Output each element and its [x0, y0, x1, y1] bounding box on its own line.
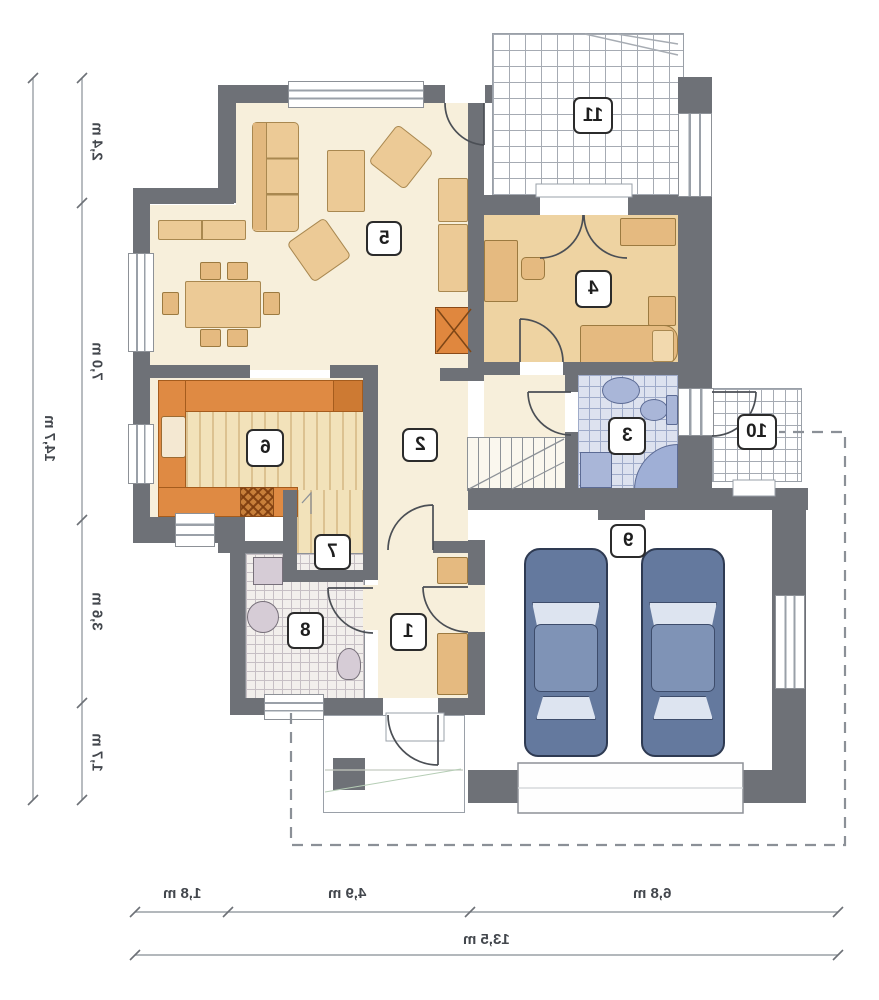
wall — [283, 570, 363, 582]
chimney — [598, 510, 645, 520]
stove — [240, 487, 274, 517]
toilet — [640, 399, 668, 421]
room-number: 9 — [623, 530, 634, 552]
room-badge-living: 5 — [366, 221, 402, 256]
window — [264, 694, 324, 720]
porch-column — [333, 758, 365, 790]
wall — [678, 434, 712, 490]
wall — [218, 85, 236, 203]
utility-door-opening — [363, 585, 378, 630]
toilet-tank — [666, 395, 678, 425]
wall — [468, 103, 484, 375]
sofa — [252, 122, 299, 232]
wall — [433, 541, 468, 553]
corridor-floor — [484, 375, 565, 437]
room-badge-kitchen: 6 — [246, 429, 284, 467]
utility-basin — [247, 601, 279, 633]
wall — [363, 365, 378, 580]
dim-bottom-3: 6,8 m — [612, 882, 692, 904]
media-cabinet — [438, 224, 468, 292]
window — [175, 513, 215, 547]
dining-chair — [227, 262, 248, 280]
room-number: 10 — [746, 421, 767, 443]
porch-door — [678, 388, 714, 436]
hall-closet — [437, 633, 468, 695]
wall — [440, 368, 484, 381]
bathroom-sink — [602, 377, 640, 404]
staircase — [467, 437, 565, 491]
dim-bottom-2: 4,9 m — [307, 882, 387, 904]
front-door-opening — [383, 698, 438, 715]
room-number: 4 — [588, 278, 599, 300]
dim-left-4: 1,7 m — [84, 707, 110, 797]
dim-left-3: 3,6 m — [84, 566, 110, 656]
room-number: 2 — [415, 434, 426, 456]
wardrobe — [620, 218, 676, 246]
room-number: 3 — [622, 425, 633, 447]
window — [128, 253, 154, 352]
wall — [468, 770, 806, 803]
room-badge-bathroom: 3 — [608, 417, 646, 455]
french-door-opening — [540, 197, 628, 215]
room-number: 1 — [403, 621, 414, 643]
dim-left-total: 14,7 m — [36, 393, 62, 483]
dining-chair — [200, 329, 221, 347]
room-badge-pantry: 7 — [314, 534, 351, 570]
garage-window — [775, 595, 805, 689]
wall — [678, 77, 712, 115]
bed — [580, 325, 678, 365]
dining-chair — [200, 262, 221, 280]
desk-chair — [521, 257, 545, 280]
room-number: 7 — [327, 541, 338, 563]
room-number: 8 — [300, 620, 311, 642]
wall — [484, 362, 520, 375]
dim-text: 6,8 m — [633, 885, 671, 902]
dim-text: 13,5 m — [463, 931, 510, 948]
dim-bottom-1: 1,8 m — [142, 882, 222, 904]
room-number: 5 — [379, 228, 390, 250]
dim-text: 1,7 m — [89, 733, 106, 771]
car — [641, 548, 725, 757]
dim-text: 4,9 m — [328, 885, 366, 902]
dim-text: 2,4 m — [89, 122, 106, 160]
tv-cabinet — [438, 178, 468, 222]
garage-door-opening — [468, 585, 485, 632]
dim-text: 3,6 m — [89, 592, 106, 630]
dining-chair — [263, 292, 280, 315]
wall — [150, 365, 250, 378]
wall — [563, 362, 678, 375]
dining-chair — [227, 329, 248, 347]
desk — [484, 240, 518, 302]
room-badge-utility: 8 — [287, 612, 324, 649]
room-badge-garage: 9 — [610, 524, 646, 558]
wall — [230, 548, 245, 700]
room-number: 6 — [260, 437, 271, 459]
dining-table — [185, 281, 261, 328]
window — [128, 424, 154, 484]
room-badge-corridor: 2 — [402, 428, 438, 462]
window — [288, 81, 424, 108]
room-badge-hall: 1 — [390, 613, 427, 651]
dim-left-1: 2,4 m — [84, 96, 110, 186]
wall — [230, 541, 285, 553]
dim-text: 7,0 m — [89, 342, 106, 380]
dim-left-2: 7,0 m — [84, 316, 110, 406]
dim-text: 1,8 m — [163, 885, 201, 902]
sideboard — [158, 220, 246, 240]
wall — [283, 490, 297, 575]
hall-closet — [437, 557, 468, 584]
wall — [468, 488, 808, 510]
dim-text: 14,7 m — [41, 415, 58, 462]
dresser — [648, 296, 676, 326]
wall — [678, 193, 712, 390]
wall — [565, 432, 578, 490]
toilet — [337, 648, 361, 680]
wall — [565, 375, 578, 392]
bathroom-washer — [580, 452, 612, 488]
kitchen-sink — [161, 416, 186, 458]
room-badge-terrace: 11 — [573, 97, 613, 134]
room-badge-study: 4 — [575, 270, 612, 308]
dining-chair — [162, 292, 179, 315]
floor-plan: 1 2 3 4 5 6 7 8 9 10 11 2,4 m 7,0 m 3,6 … — [0, 0, 879, 1000]
coffee-table — [327, 150, 365, 212]
fridge — [333, 380, 363, 412]
terrace-door-opening — [445, 85, 485, 103]
room-number: 11 — [583, 105, 603, 127]
room-badge-porch: 10 — [737, 414, 777, 450]
dim-bottom-total: 13,5 m — [446, 928, 526, 950]
car — [524, 548, 608, 757]
washing-machine — [253, 557, 283, 585]
window — [678, 113, 712, 197]
